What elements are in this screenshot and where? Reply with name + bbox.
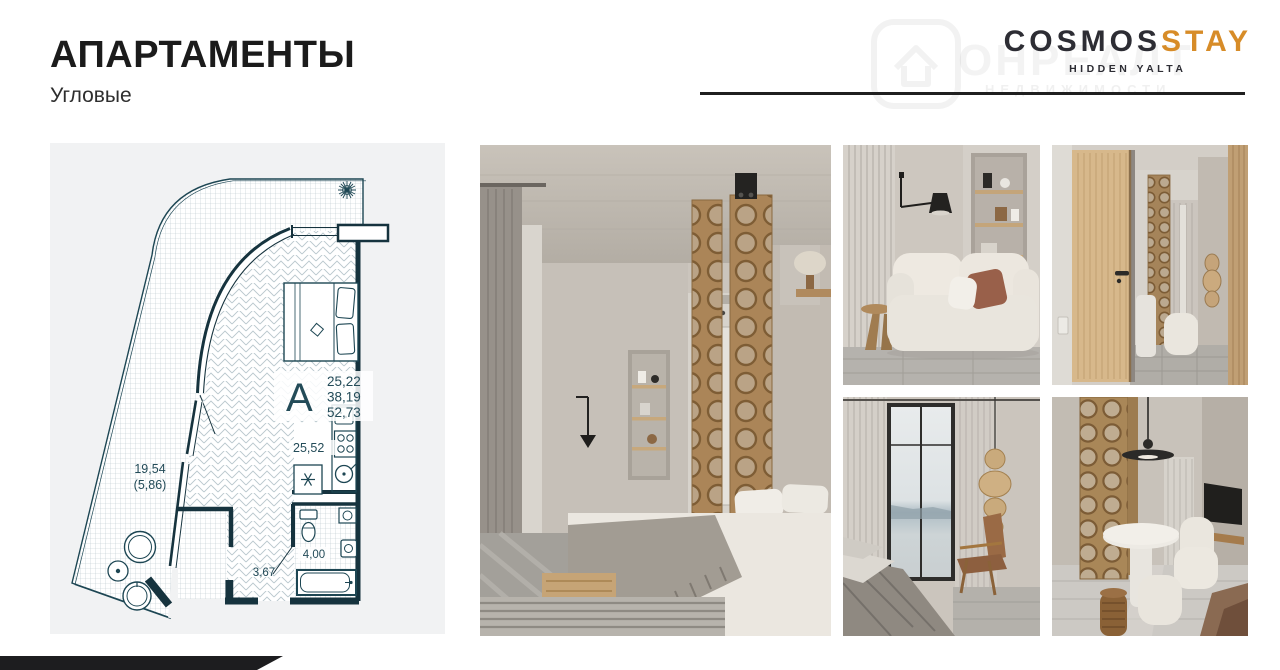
area-line-3: 52,73 bbox=[327, 405, 361, 420]
terrace-area-reduced: (5,86) bbox=[134, 478, 167, 492]
terrace-area: 19,54 bbox=[134, 462, 165, 476]
photo-bedroom-window bbox=[843, 397, 1040, 636]
area-line-2: 38,19 bbox=[327, 390, 361, 405]
floor-plan-drawing: А 25,22 38,19 52,73 25,52 19,54 (5,86) 3… bbox=[50, 143, 445, 634]
brand-tagline: HIDDEN YALTA bbox=[1004, 63, 1252, 75]
title-block: АПАРТАМЕНТЫ Угловые bbox=[50, 36, 355, 106]
floor-plan-card: А 25,22 38,19 52,73 25,52 19,54 (5,86) 3… bbox=[50, 143, 445, 634]
photo-dining-nook bbox=[1052, 397, 1248, 636]
hall-area: 3,67 bbox=[253, 567, 275, 579]
brand-primary-text: COSMOS bbox=[1004, 25, 1161, 58]
watermark-subtext: НЕДВИЖИМОСТИ bbox=[985, 82, 1171, 97]
room-area: 25,52 bbox=[293, 441, 324, 455]
bathroom-area: 4,00 bbox=[303, 549, 325, 561]
page-title: АПАРТАМЕНТЫ bbox=[50, 36, 355, 74]
bed bbox=[284, 283, 358, 361]
unit-letter: А bbox=[286, 376, 313, 420]
corner-accent-bar bbox=[0, 656, 283, 670]
brand-accent-text: STAY bbox=[1161, 25, 1252, 58]
photo-bedroom-overview bbox=[480, 145, 831, 636]
area-line-1: 25,22 bbox=[327, 374, 361, 389]
photo-sofa-niche bbox=[843, 145, 1040, 385]
page-subtitle: Угловые bbox=[50, 85, 355, 106]
brand-name: COSMOSSTAY bbox=[1004, 27, 1252, 57]
watermark-house-icon bbox=[868, 16, 964, 112]
brand-logo: COSMOSSTAY HIDDEN YALTA bbox=[1004, 27, 1252, 75]
header-divider-line bbox=[700, 92, 1245, 95]
photo-entry-hallway bbox=[1052, 145, 1248, 385]
presentation-slide: АПАРТАМЕНТЫ Угловые ОНРЕАЛТ НЕДВИЖИМОСТИ… bbox=[0, 0, 1280, 670]
